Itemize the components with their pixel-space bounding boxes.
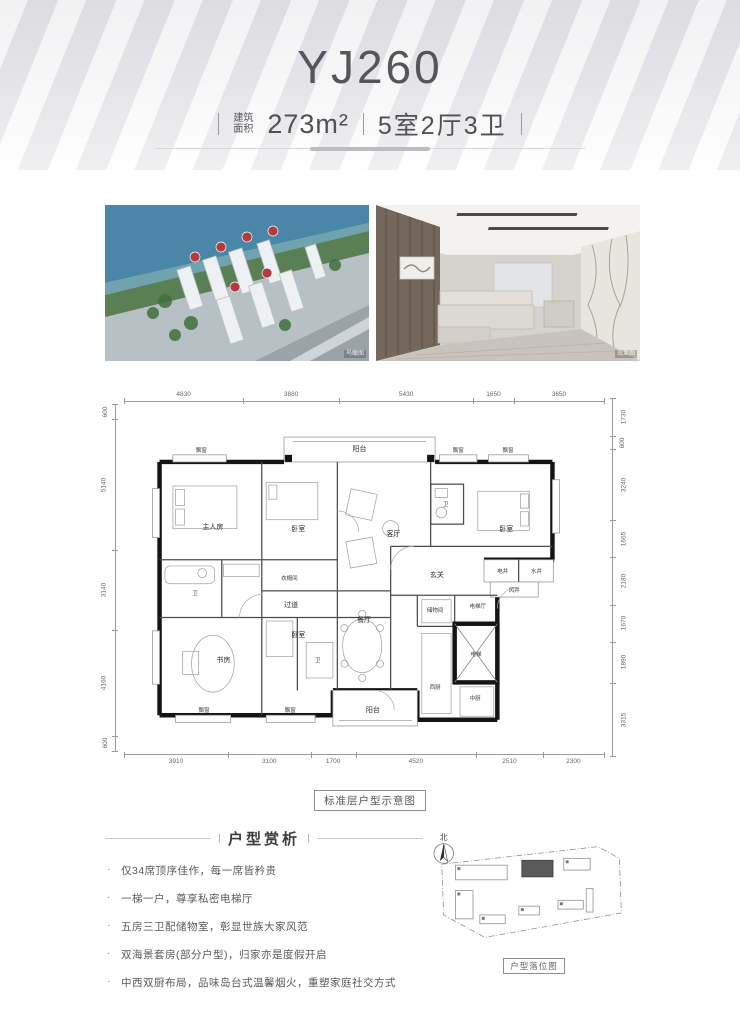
room-label: 餐厅 [357,615,371,625]
room-layout-value: 5室2厅3卫 [378,106,507,142]
site-plan-drawing: 北 [423,832,645,954]
page-title: YJ260 [0,40,740,94]
floor-plan-drawing: 飘窗阳台飘窗飘窗主人房卧室卫卧室衣帽间卫过道客厅玄关电井水井风井书房卧室卫餐厅储… [124,404,604,751]
bottom-section: 户型赏析 仅34席顶序佳作，每一席皆矜贵一梯一户，尊享私密电梯厅五房三卫配储物室… [105,828,645,1003]
analysis-bullet: 仅34席顶序佳作，每一席皆矜贵 [105,863,423,878]
room-label: 电井 [497,567,508,575]
room-label: 飘窗 [196,446,207,454]
rule-line [317,838,423,839]
analysis-bullet: 双海景套房(部分户型)，归家亦是度假开启 [105,947,423,962]
dimension-label: 600 [619,437,626,448]
dimension-label: 600 [102,738,109,749]
dimension-label: 2180 [621,574,628,588]
dimension-label: 1890 [621,655,628,669]
dimension-label: 5430 [399,391,413,398]
dimension-label: 4520 [409,758,423,765]
area-label: 建筑 面积 [233,113,253,135]
area-value: 273m² [267,109,349,140]
dimension-label: 3910 [169,758,183,765]
aerial-photo-illustration [105,205,369,361]
room-label: 飘窗 [285,706,296,714]
dimension-label: 2300 [566,758,580,765]
room-label: 飘窗 [198,706,209,714]
floor-plan: 48303880543016503650 3910310017004520251… [90,388,650,780]
spec-row: 建筑 面积 273m² 5室2厅3卫 [0,106,740,142]
dimension-label: 1665 [621,531,628,545]
dimension-label: 3140 [100,583,107,597]
analysis-bullet: 中西双厨布局，品味岛台式温馨烟火，重塑家庭社交方式 [105,975,423,990]
rule-tick [219,834,220,843]
dimension-row-top: 48303880543016503650 [124,388,604,402]
room-label: 客厅 [386,529,400,539]
site-plan-caption: 户型落位图 [503,958,565,974]
room-label: 电梯 [470,650,481,658]
room-label: 书房 [217,655,231,665]
site-plan-caption-row: 户型落位图 [423,956,645,974]
room-label: 卧室 [291,524,305,534]
room-label: 飘窗 [502,446,513,454]
analysis-header: 户型赏析 [105,828,423,849]
room-label: 中厨 [470,694,481,702]
dimension-label: 3650 [552,391,566,398]
dimension-label: 4830 [176,391,190,398]
photo-row: 鸟瞰图 [105,205,641,361]
rule-tick [308,834,309,843]
room-label: 储物间 [427,606,444,614]
room-labels: 飘窗阳台飘窗飘窗主人房卧室卫卧室衣帽间卫过道客厅玄关电井水井风井书房卧室卫餐厅储… [124,404,604,751]
room-label: 卧室 [499,524,513,534]
aerial-photo-watermark: 鸟瞰图 [344,350,366,358]
room-label: 水井 [531,567,542,575]
header-divider [155,148,585,149]
dimension-label: 3315 [621,712,628,726]
highlighted-building [522,860,553,877]
dimension-label: 4160 [100,676,107,690]
rule-line [105,838,211,839]
room-label: 过道 [284,600,298,610]
room-label: 阳台 [353,444,367,454]
dimension-label: 1700 [326,758,340,765]
room-label: 卧室 [291,630,305,640]
divider-bar [218,113,219,135]
analysis-bullet: 五房三卫配储物室，彰显世族大家风范 [105,919,423,934]
analysis-title: 户型赏析 [228,828,300,849]
dimension-column-right: 1730600324016652180167018903315 [612,398,626,756]
aerial-photo: 鸟瞰图 [105,205,369,361]
plan-caption: 标准层户型示意图 [314,790,426,811]
interior-photo-watermark: 效果图 [615,350,637,358]
dimension-label: 3240 [621,478,628,492]
dimension-label: 1650 [486,391,500,398]
dimension-label: 1730 [621,410,628,424]
analysis-bullet-list: 仅34席顶序佳作，每一席皆矜贵一梯一户，尊享私密电梯厅五房三卫配储物室，彰显世族… [105,863,423,990]
header-divider-thumb [310,147,430,151]
analysis-panel: 户型赏析 仅34席顶序佳作，每一席皆矜贵一梯一户，尊享私密电梯厅五房三卫配储物室… [105,828,423,1003]
analysis-bullet: 一梯一户，尊享私密电梯厅 [105,891,423,906]
room-label: 风井 [509,586,520,594]
interior-photo: 效果图 [376,205,640,361]
area-label-line1: 建筑 [233,113,253,124]
dimension-label: 3880 [284,391,298,398]
interior-photo-illustration [376,205,640,361]
dimension-label: 1670 [621,616,628,630]
room-label: 主人房 [202,522,223,532]
room-label: 衣帽间 [281,574,298,582]
room-label: 电梯厅 [470,602,487,610]
area-label-line2: 面积 [233,124,253,135]
dimension-label: 5140 [100,477,107,491]
room-label: 卫 [443,500,449,508]
dimension-label: 2510 [502,758,516,765]
north-label-glyph: 北 [440,833,448,842]
header-banner: YJ260 建筑 面积 273m² 5室2厅3卫 [0,0,740,170]
room-label: 卫 [315,656,321,664]
room-label: 阳台 [366,705,380,715]
room-label: 玄关 [430,570,444,580]
dimension-row-bottom: 391031001700452025102300 [124,754,604,768]
room-label: 西厨 [430,683,441,691]
room-label: 卫 [192,589,198,597]
divider-bar [363,113,364,135]
plan-caption-row: 标准层户型示意图 [0,790,740,811]
dimension-label: 3100 [262,758,276,765]
dimension-column-left: 600514031404160600 [102,404,116,751]
room-label: 飘窗 [453,446,464,454]
divider-bar [521,113,522,135]
dimension-label: 600 [102,406,109,417]
site-plan: 北 户型落位图 [423,828,645,1003]
